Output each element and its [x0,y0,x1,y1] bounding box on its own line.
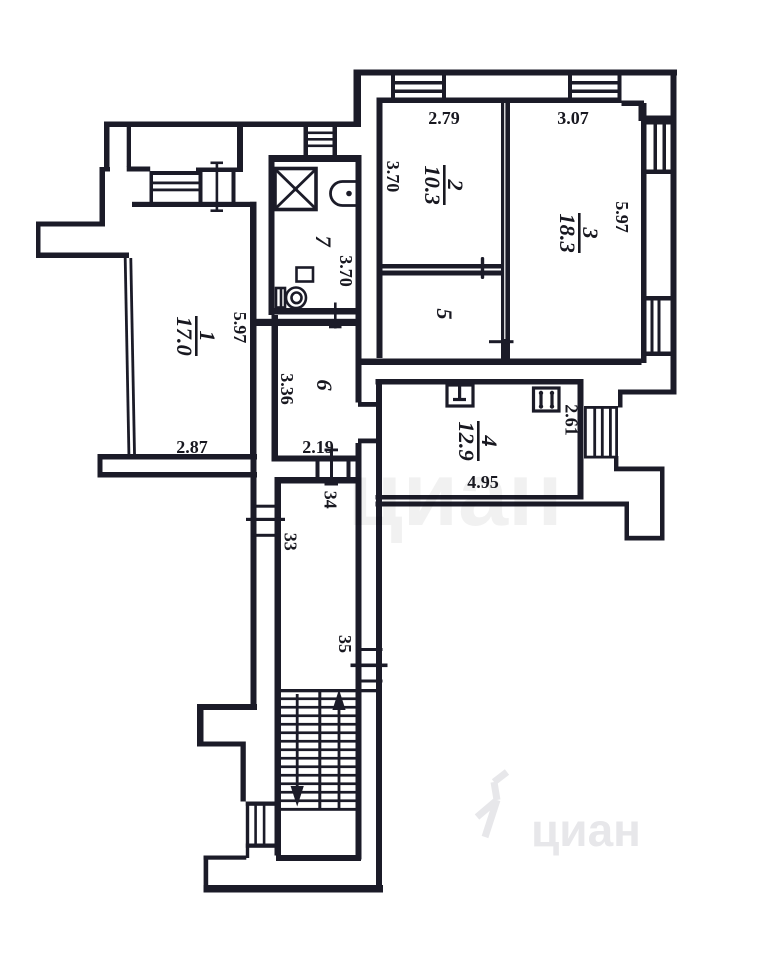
svg-text:2.19: 2.19 [302,437,334,457]
svg-text:3.36: 3.36 [277,373,297,405]
svg-text:3: 3 [578,226,603,238]
svg-text:5: 5 [432,308,457,319]
svg-text:12.9: 12.9 [454,421,479,460]
svg-text:33: 33 [281,533,301,551]
svg-text:3.70: 3.70 [383,161,403,193]
svg-text:2.61: 2.61 [562,404,582,436]
svg-text:3.07: 3.07 [557,108,589,128]
svg-text:7: 7 [311,235,336,247]
svg-text:35: 35 [335,635,355,653]
svg-text:10.3: 10.3 [420,165,445,204]
svg-text:17.0: 17.0 [172,316,197,355]
svg-text:4: 4 [477,434,502,446]
svg-text:18.3: 18.3 [555,213,580,252]
svg-text:5.97: 5.97 [612,201,632,233]
svg-text:4.95: 4.95 [467,472,499,492]
svg-text:5.97: 5.97 [230,312,250,344]
svg-text:34: 34 [321,491,341,509]
svg-text:2.87: 2.87 [176,437,208,457]
svg-text:1: 1 [195,330,220,341]
svg-text:3.70: 3.70 [336,255,356,287]
svg-text:6: 6 [312,379,337,391]
svg-text:2.79: 2.79 [428,108,460,128]
svg-text:циан: циан [531,804,641,856]
svg-text:2: 2 [443,178,468,190]
